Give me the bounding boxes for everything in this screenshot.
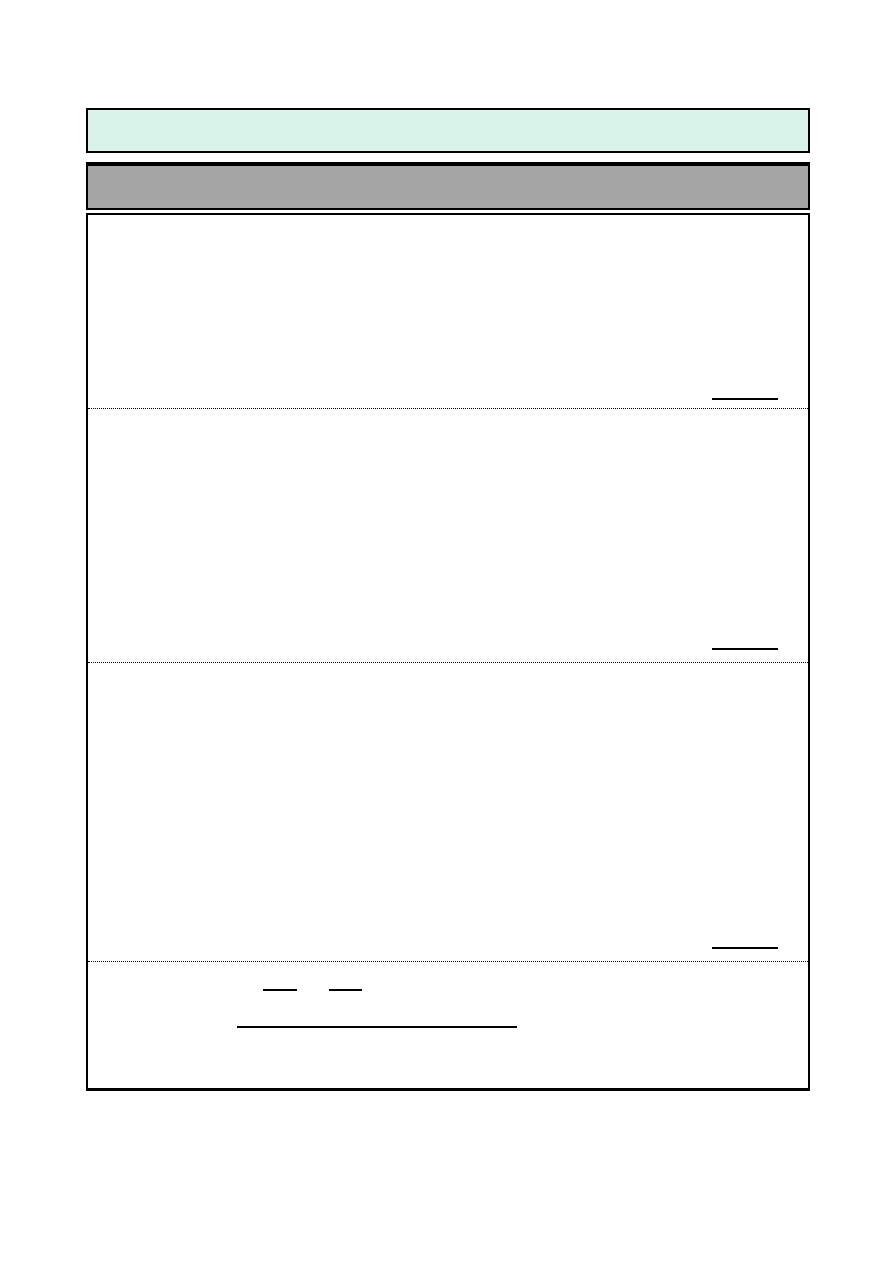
content-box-inner bbox=[88, 215, 808, 1088]
title-bar bbox=[86, 162, 810, 210]
content-box bbox=[86, 213, 810, 1091]
section-2 bbox=[88, 408, 808, 662]
section-1 bbox=[88, 215, 808, 408]
footer-section bbox=[88, 961, 808, 1088]
footer-short-blank-1 bbox=[263, 989, 297, 991]
header-band bbox=[86, 108, 810, 153]
section-3-answer-blank bbox=[712, 947, 778, 949]
footer-long-blank bbox=[237, 1026, 517, 1028]
section-3 bbox=[88, 662, 808, 961]
section-1-answer-blank bbox=[712, 398, 778, 400]
section-2-answer-blank bbox=[712, 648, 778, 650]
document-page bbox=[0, 0, 893, 1262]
footer-short-blank-2 bbox=[329, 989, 362, 991]
